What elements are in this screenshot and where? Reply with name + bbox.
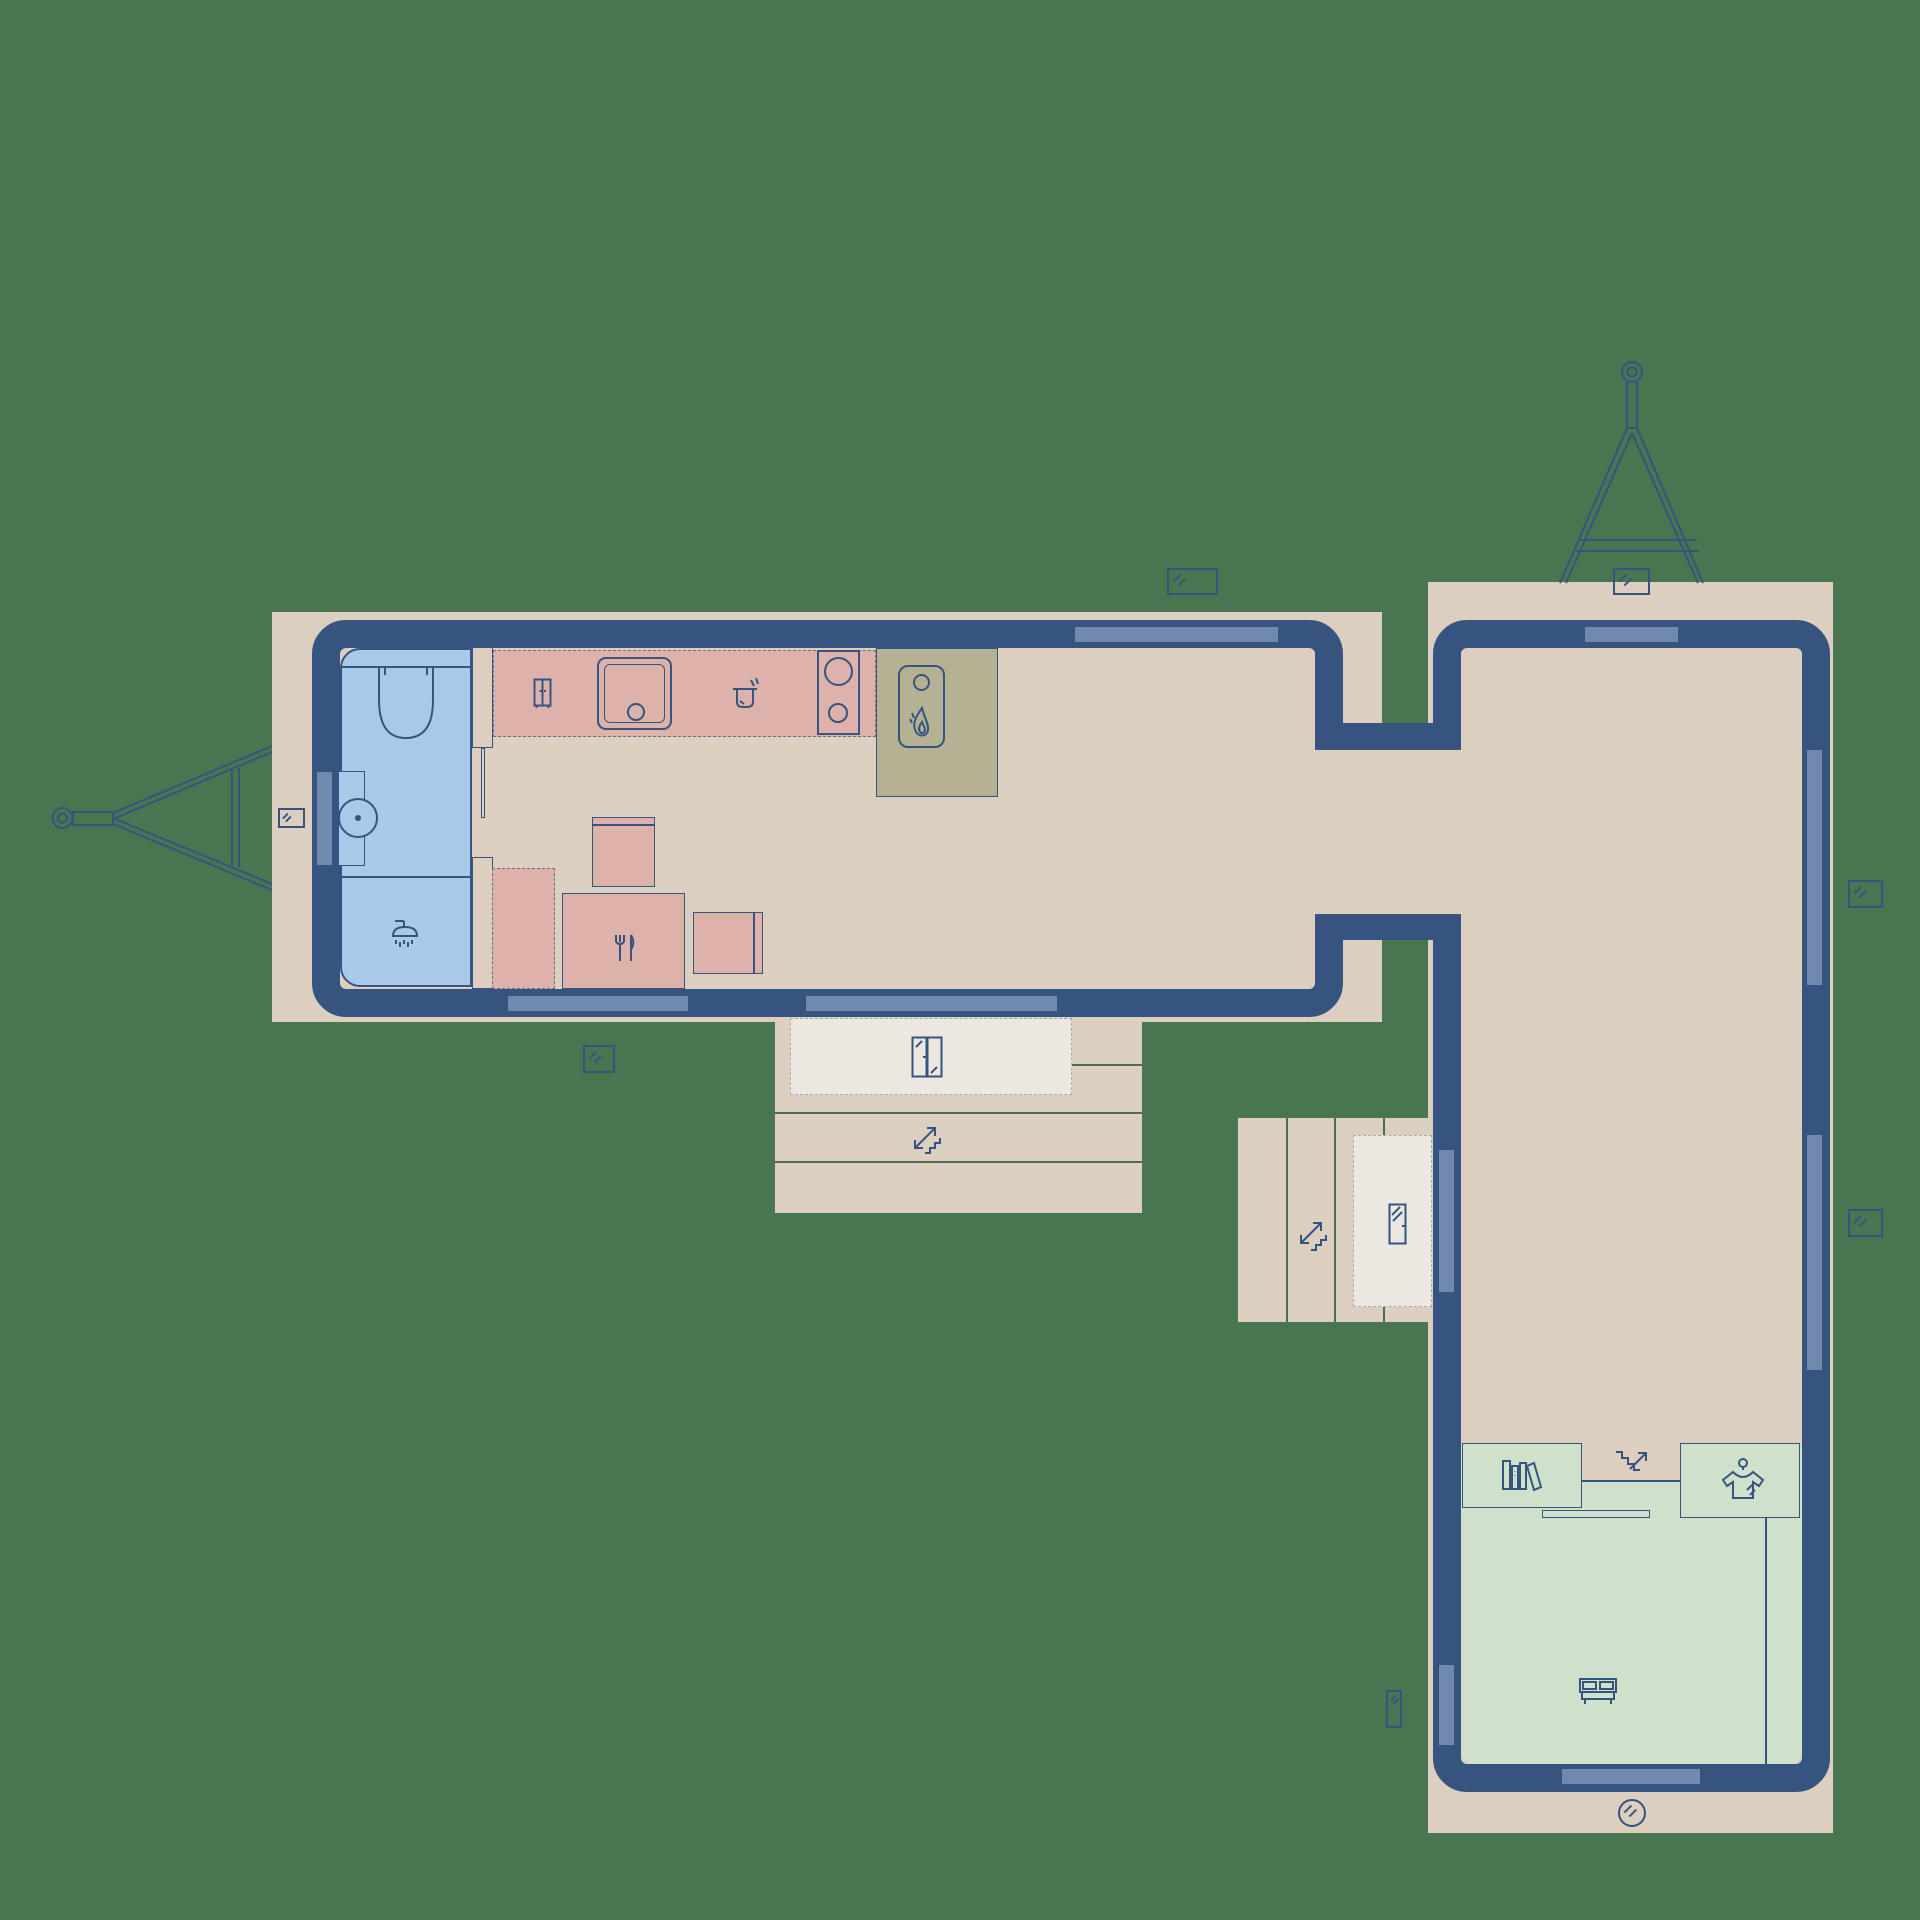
corridor-floor: [1303, 750, 1465, 914]
dining-chair-top: [592, 817, 655, 887]
window-marker: [1848, 1209, 1883, 1237]
window-bedroom-left-lower: [1439, 1665, 1454, 1745]
washbasin-drain: [355, 815, 361, 821]
floor-plan: [0, 0, 1920, 1920]
window-bedroom-top: [1585, 627, 1678, 642]
porch-bedroom-plank-gap: [1334, 1118, 1336, 1322]
shower-partition-line: [341, 876, 471, 878]
partition-wall-upper: [472, 647, 493, 748]
porch-main-plank-line: [1072, 1064, 1142, 1066]
stairs-icon: [908, 1119, 944, 1155]
window-marker: [1613, 568, 1650, 595]
porthole-icon: [1618, 1799, 1646, 1827]
trailer-hitch-main: [40, 735, 280, 900]
window-main-bottom-2: [806, 996, 1057, 1011]
porch-main-plank-line: [775, 1161, 1142, 1163]
window-marker-vertical: [1386, 1690, 1402, 1728]
window-marker: [278, 808, 305, 828]
glass-door-bedroom-left: [1439, 1150, 1454, 1292]
window-bedroom-bottom: [1562, 1769, 1700, 1784]
fork-knife-icon: [611, 933, 637, 965]
partition-wall-lower: [472, 857, 493, 989]
trailer-hitch-bedroom: [1545, 355, 1715, 585]
window-bedroom-right-upper: [1807, 750, 1822, 985]
cabinet-icon: [533, 678, 552, 709]
window-marker: [583, 1045, 615, 1073]
window-main-left: [317, 772, 332, 865]
bathroom-door-leaf: [481, 748, 485, 818]
burner-large: [824, 657, 853, 686]
chair-backrest-line: [593, 824, 654, 826]
porch-main-plank-line: [775, 1112, 1142, 1114]
burner-small: [828, 703, 848, 723]
window-marker: [1167, 568, 1218, 595]
flame-icon: [908, 705, 934, 742]
corridor-wall-bottom: [1315, 914, 1461, 940]
window-marker: [1848, 880, 1883, 908]
dining-cupboard: [492, 868, 555, 989]
heater-dial: [913, 674, 930, 691]
stairs-up-icon: [1613, 1444, 1651, 1480]
porch-bedroom-plank-gap: [1286, 1118, 1288, 1322]
corridor-wall-top: [1315, 723, 1461, 750]
shower-icon: [390, 918, 420, 952]
window-bedroom-right-lower: [1807, 1135, 1822, 1370]
kitchen-sink-drain: [627, 703, 645, 721]
closet-front-line: [1582, 1480, 1680, 1482]
bed-icon: [1578, 1674, 1618, 1707]
shirt-hanger-icon: [1718, 1456, 1766, 1506]
toilet-icon: [375, 664, 437, 744]
books-icon: [1500, 1457, 1538, 1495]
chair-backrest-line: [753, 913, 755, 973]
pot-icon: [730, 676, 760, 710]
double-door-icon: [911, 1036, 943, 1078]
sliding-rail: [1542, 1510, 1650, 1518]
window-main-top: [1075, 627, 1278, 642]
bed-area-divider: [1765, 1518, 1767, 1764]
window-main-bottom-1: [508, 996, 688, 1011]
door-icon: [1388, 1203, 1407, 1245]
stairs-icon: [1294, 1212, 1330, 1252]
